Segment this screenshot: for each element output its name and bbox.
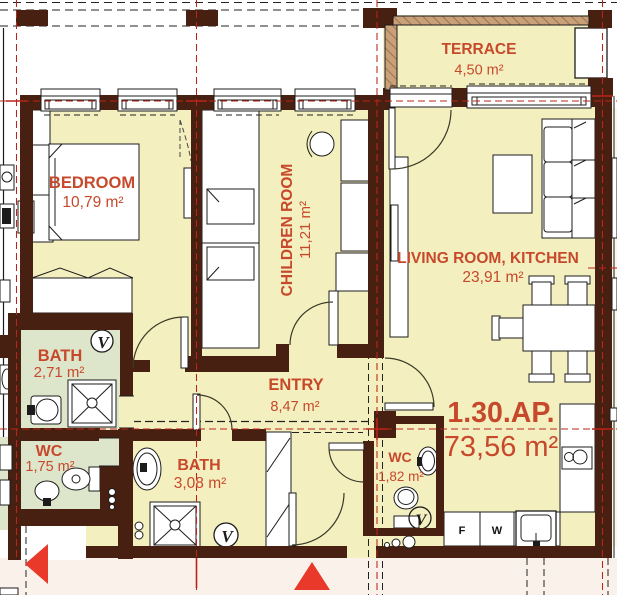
svg-text:8,47 m²: 8,47 m² bbox=[270, 399, 319, 415]
svg-text:W: W bbox=[492, 525, 503, 537]
svg-text:11,21 m²: 11,21 m² bbox=[297, 201, 314, 259]
svg-text:2,71 m²: 2,71 m² bbox=[34, 364, 85, 381]
svg-text:V: V bbox=[416, 512, 428, 529]
svg-text:10,79 m²: 10,79 m² bbox=[62, 194, 123, 211]
svg-text:BATH: BATH bbox=[38, 347, 83, 365]
svg-text:3,08 m²: 3,08 m² bbox=[174, 475, 227, 492]
svg-text:ENTRY: ENTRY bbox=[268, 376, 323, 394]
svg-text:23,91 m²: 23,91 m² bbox=[462, 269, 523, 286]
svg-text:1.30.AP.: 1.30.AP. bbox=[447, 397, 554, 429]
svg-text:V: V bbox=[221, 527, 234, 546]
svg-text:LIVING ROOM, KITCHEN: LIVING ROOM, KITCHEN bbox=[397, 250, 579, 267]
svg-text:F: F bbox=[459, 525, 466, 537]
svg-text:4,50 m²: 4,50 m² bbox=[454, 63, 503, 79]
svg-text:73,56 m²: 73,56 m² bbox=[444, 431, 559, 463]
svg-text:BATH: BATH bbox=[177, 457, 220, 474]
svg-text:BEDROOM: BEDROOM bbox=[49, 174, 135, 192]
svg-text:WC: WC bbox=[36, 443, 63, 460]
svg-text:WC: WC bbox=[388, 449, 411, 465]
svg-text:1,75 m²: 1,75 m² bbox=[25, 459, 74, 475]
svg-text:CHILDREN ROOM: CHILDREN ROOM bbox=[279, 164, 296, 297]
svg-text:V: V bbox=[97, 333, 110, 352]
svg-text:TERRACE: TERRACE bbox=[442, 41, 517, 58]
svg-text:1,82 m²: 1,82 m² bbox=[378, 469, 424, 484]
